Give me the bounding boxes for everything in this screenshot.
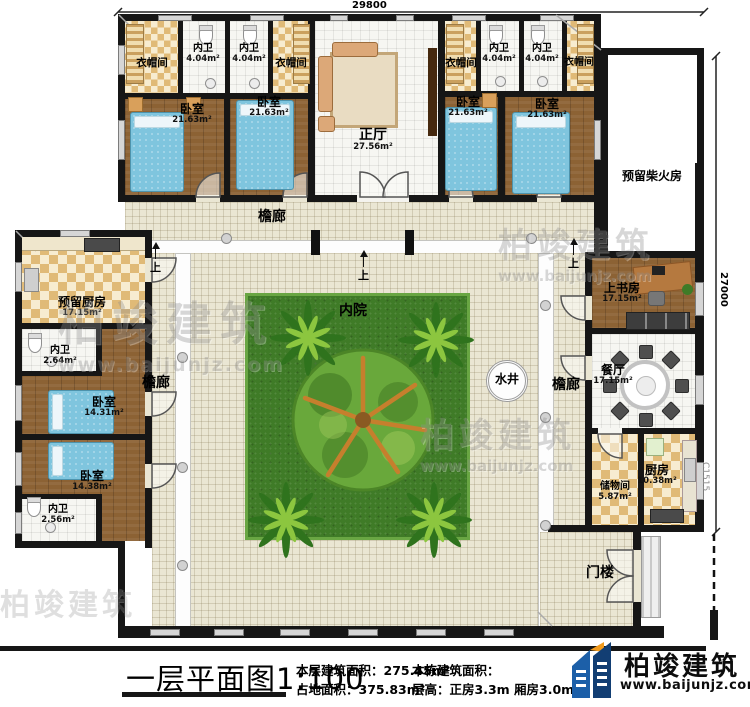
window <box>15 262 22 292</box>
floor-plan: 衣帽间 内卫4.04m² 内卫4.04m² 衣帽间 卧室21.63m² 卧室21… <box>0 0 750 707</box>
door-gap <box>585 296 592 320</box>
window <box>396 15 414 21</box>
room-label-kitchen: 厨房10.38m² <box>637 464 676 486</box>
door-gap <box>449 195 473 202</box>
room-label-bedroom: 卧室14.31m² <box>84 396 123 418</box>
column <box>311 230 320 255</box>
window <box>484 629 514 636</box>
plant-pot <box>682 284 693 295</box>
door-gap <box>585 356 592 380</box>
wall <box>118 548 125 634</box>
post-dot <box>177 462 188 473</box>
window <box>452 15 486 21</box>
gatehouse-top-wall <box>548 525 588 532</box>
stat-storey-height: 层高：正房3.3m 厢房3.0m <box>412 679 574 698</box>
sofa <box>332 42 378 57</box>
watermark: 柏竣建筑 <box>0 580 136 624</box>
wall <box>225 21 230 95</box>
window <box>158 15 192 21</box>
kitchen-sink <box>684 458 696 482</box>
firewood-room-outline <box>601 48 704 258</box>
bed <box>512 112 570 194</box>
step-up-marker: 上 <box>150 242 161 275</box>
window <box>118 45 125 75</box>
wall <box>710 610 718 640</box>
wardrobe <box>577 24 594 84</box>
room-label-bedroom: 卧室21.63m² <box>249 96 288 118</box>
wall <box>96 329 102 375</box>
dimension-top-width: 29800 <box>352 0 387 11</box>
monitor <box>652 266 665 275</box>
door-gap <box>537 195 561 202</box>
room-label-cloakroom: 衣帽间 <box>275 58 307 69</box>
door-gap <box>598 428 622 434</box>
stove <box>84 238 120 252</box>
room-label-storage: 储物间5.87m² <box>598 482 632 501</box>
wall <box>268 21 273 95</box>
entrance-steps <box>641 536 661 618</box>
room-label-bedroom: 卧室21.63m² <box>172 103 211 125</box>
window <box>15 385 22 421</box>
room-label-cloakroom: 衣帽间 <box>564 58 594 69</box>
hall-rug <box>330 52 398 128</box>
room-label-cloakroom: 衣帽间 <box>136 58 168 69</box>
post-dot <box>540 412 551 423</box>
window <box>15 512 22 534</box>
post-dot <box>540 520 551 531</box>
wardrobe <box>446 24 464 84</box>
wall <box>22 371 102 376</box>
room-label-cloakroom: 衣帽间 <box>445 58 477 69</box>
room-label-study: 上书房17.15m² <box>602 282 641 304</box>
dining-table-center <box>636 376 656 396</box>
step-up-marker: 上 <box>358 250 369 283</box>
room-label-hall: 正厅27.56m² <box>353 128 392 152</box>
wall <box>498 91 505 195</box>
well-label: 水井 <box>495 373 519 386</box>
veranda-label-top: 檐廊 <box>258 210 286 225</box>
door-gap <box>145 464 152 488</box>
nightstand <box>128 97 143 112</box>
post-dot <box>540 300 551 311</box>
room-label-bath: 内卫4.04m² <box>186 44 220 63</box>
wall <box>519 21 524 93</box>
right-wing-inner-wall <box>585 252 592 532</box>
wall <box>585 525 704 532</box>
room-label-reserved-kitchen: 预留厨房17.15m² <box>58 296 106 318</box>
room-label-bath: 内卫4.04m² <box>525 44 559 63</box>
post-dot <box>221 233 232 244</box>
door-gap <box>283 195 307 202</box>
bed <box>445 107 497 191</box>
window <box>695 282 704 316</box>
stat-site-area: 占地面积：375.83m² <box>296 679 425 698</box>
post-dot <box>177 352 188 363</box>
stat-building-area: 本栋建筑面积： <box>412 660 500 679</box>
tv-console <box>428 48 437 136</box>
room-label-bath: 内卫2.56m² <box>41 505 75 524</box>
brand-logo-icon <box>566 640 620 702</box>
sink <box>495 76 506 87</box>
toilet <box>28 336 42 353</box>
step-up-marker: 上 <box>568 238 579 271</box>
up-arrow-icon <box>152 242 160 249</box>
wall <box>224 95 230 195</box>
sink <box>537 76 548 87</box>
wall <box>22 434 145 440</box>
study-sofa <box>626 312 690 330</box>
wall <box>178 21 183 95</box>
up-arrow-icon <box>570 238 578 245</box>
room-label-bath: 内卫4.04m² <box>232 44 266 63</box>
stove <box>650 509 684 523</box>
post-dot <box>526 233 537 244</box>
wardrobe <box>126 24 144 84</box>
chair <box>675 379 689 393</box>
room-label-bedroom: 卧室21.63m² <box>448 96 487 118</box>
window <box>150 629 180 636</box>
door-gap <box>145 392 152 416</box>
window <box>330 15 348 21</box>
chair <box>639 413 653 427</box>
brand-site: www.baijunjz.com <box>620 678 750 693</box>
left-wing-bottom-wall <box>15 541 125 548</box>
window <box>214 629 244 636</box>
room-label-bedroom: 卧室14.38m² <box>72 470 111 492</box>
window <box>348 629 378 636</box>
storage-floor <box>592 434 638 525</box>
courtyard-label: 内院 <box>339 304 367 319</box>
window <box>15 452 22 486</box>
desk-chair <box>648 291 665 306</box>
sink <box>24 268 39 292</box>
chair <box>639 345 653 359</box>
sink <box>249 78 260 89</box>
room-label-gatehouse: 门楼 <box>586 566 614 581</box>
title-underline <box>122 692 286 697</box>
gatehouse-door-gap <box>633 550 641 602</box>
window <box>540 15 574 21</box>
post-dot <box>177 560 188 571</box>
window <box>695 375 704 405</box>
armchair <box>318 116 335 132</box>
sofa <box>318 56 333 112</box>
wall <box>22 323 145 329</box>
bottom-wall <box>118 626 664 638</box>
window <box>250 15 284 21</box>
dimension-right-height: 27000 <box>718 272 729 307</box>
up-arrow-icon <box>360 250 368 257</box>
door-gap <box>196 195 220 202</box>
room-label-dining: 餐厅17.15m² <box>593 364 632 386</box>
sink <box>205 78 216 89</box>
courtyard-lawn <box>245 293 470 540</box>
veranda-label-right: 檐廊 <box>552 378 580 393</box>
hall-right-wall <box>438 21 445 195</box>
window <box>416 629 446 636</box>
window <box>60 230 90 237</box>
toilet <box>27 500 41 517</box>
room-label-bath: 内卫2.64m² <box>43 346 77 365</box>
wall <box>594 202 608 258</box>
room-label-bedroom: 卧室21.63m² <box>527 98 566 120</box>
wall <box>585 252 704 258</box>
room-label-bath: 内卫4.04m² <box>482 44 516 63</box>
window <box>118 120 125 160</box>
window <box>280 629 310 636</box>
wall <box>96 494 102 541</box>
wardrobe <box>293 24 310 84</box>
window <box>594 120 601 160</box>
veranda-label-left: 檐廊 <box>142 376 170 391</box>
room-label-firewood: 预留柴火房 <box>622 170 682 183</box>
eave-strip-left <box>175 253 191 628</box>
column <box>405 230 414 255</box>
hall-door-gap <box>357 195 409 202</box>
fridge <box>646 438 664 456</box>
window-code-label: C1515 <box>700 462 710 491</box>
